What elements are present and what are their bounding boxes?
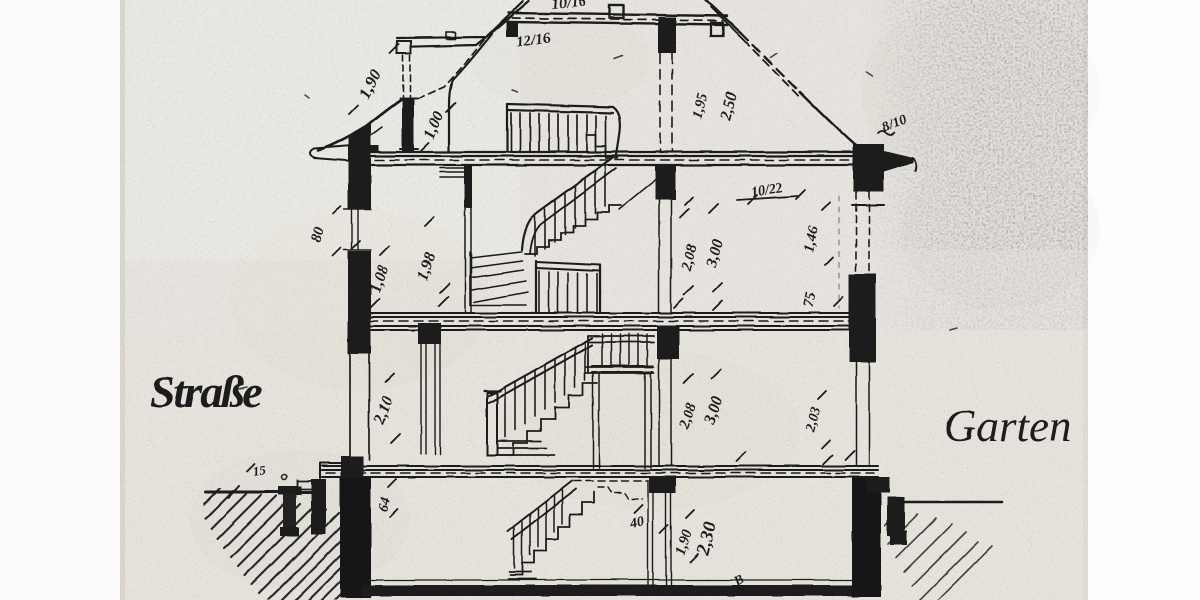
svg-text:Straße: Straße [150,366,262,417]
svg-text:Garten: Garten [944,401,1072,451]
svg-text:40: 40 [628,514,646,532]
svg-text:15: 15 [252,462,267,479]
